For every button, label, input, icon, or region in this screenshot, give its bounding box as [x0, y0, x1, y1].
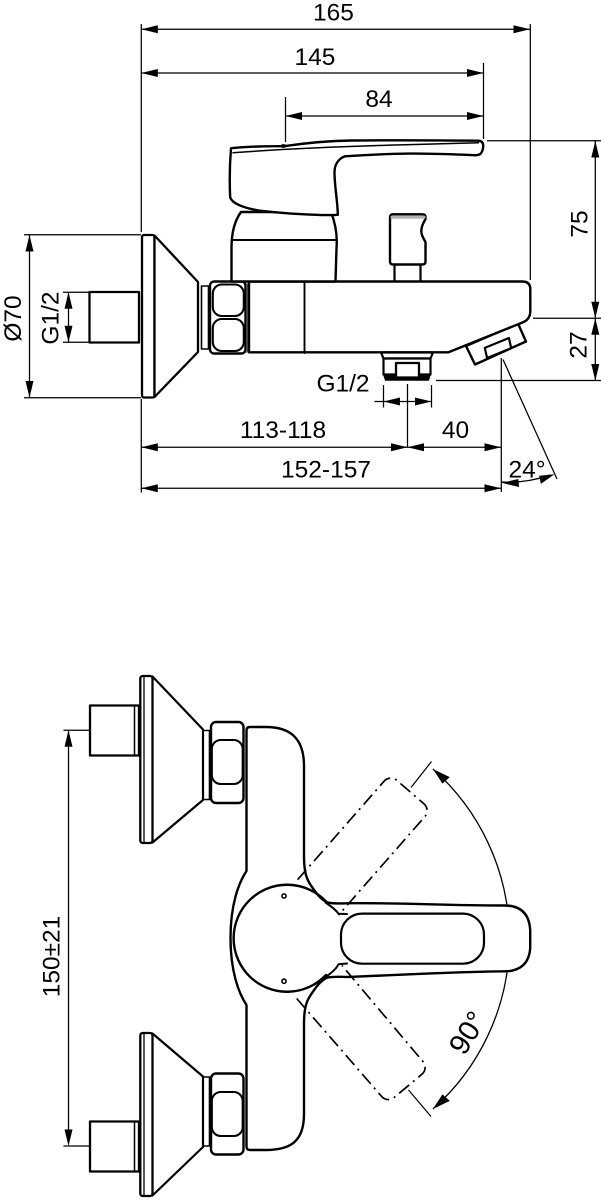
svg-text:G1/2: G1/2	[38, 291, 65, 344]
svg-text:145: 145	[295, 44, 336, 71]
svg-text:84: 84	[365, 86, 392, 113]
svg-text:27: 27	[566, 331, 593, 358]
svg-text:40: 40	[442, 417, 469, 444]
svg-text:150±21: 150±21	[39, 916, 66, 998]
svg-text:113-118: 113-118	[240, 417, 326, 444]
svg-text:G1/2: G1/2	[316, 371, 369, 398]
svg-text:152-157: 152-157	[281, 457, 371, 484]
svg-text:165: 165	[313, 0, 354, 27]
svg-text:75: 75	[567, 210, 594, 237]
svg-text:Ø70: Ø70	[0, 295, 27, 341]
svg-text:24°: 24°	[508, 457, 545, 484]
